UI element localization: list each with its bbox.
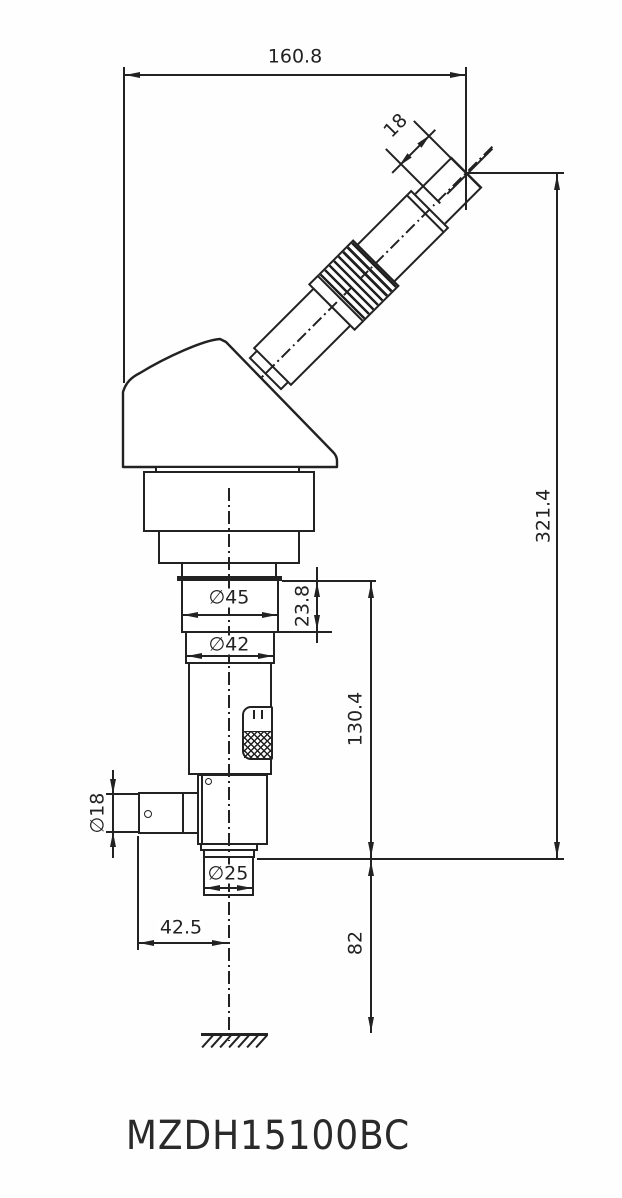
arrowhead <box>125 72 140 78</box>
dim-text-ring42-dia: ∅42 <box>207 636 252 655</box>
ext-line-mount-face <box>257 858 564 860</box>
arrowhead <box>368 861 374 876</box>
arrowhead <box>262 612 277 618</box>
dim-text-port-dia: ∅18 <box>89 791 108 836</box>
main-centerline <box>228 488 230 1041</box>
arrowhead <box>258 653 273 659</box>
arrowhead <box>554 842 560 857</box>
arrowhead <box>187 653 202 659</box>
knob-tick <box>261 710 263 719</box>
ext-line-tip-level <box>467 172 564 174</box>
arrowhead <box>139 940 154 946</box>
lower-block-screw <box>205 778 212 785</box>
dim-line-body-and-base <box>370 581 372 1033</box>
ext-line-port-end <box>137 836 139 950</box>
dim-line-ring-height <box>316 567 318 643</box>
technical-drawing-canvas: 160.8 18 321.4 23.8 ∅45 ∅42 130.4 ∅18 ∅2… <box>0 0 622 1198</box>
dim-line-overall-height <box>556 174 558 859</box>
knob-tick <box>253 710 255 719</box>
dim-text-overall-height: 321.4 <box>535 487 554 545</box>
side-port-screw <box>144 810 152 818</box>
arrowhead <box>554 175 560 190</box>
arrowhead <box>314 582 320 597</box>
dim-text-base-height: 82 <box>347 929 366 957</box>
zoom-knob <box>242 706 273 760</box>
arrowhead <box>368 1017 374 1032</box>
arrowhead <box>237 885 252 891</box>
ext-line-flange-top <box>282 580 376 582</box>
arrowhead <box>183 612 198 618</box>
model-title: MZDH15100BC <box>126 1113 410 1159</box>
ext-line-left <box>123 67 125 383</box>
ext-line-right <box>465 67 467 210</box>
arrowhead <box>417 132 432 147</box>
arrowhead <box>368 842 374 857</box>
arrowhead <box>314 615 320 630</box>
dim-text-port-offset: 42.5 <box>158 919 204 938</box>
arrowhead <box>450 72 465 78</box>
dim-text-top-width: 160.8 <box>266 48 324 67</box>
dim-text-ring-height: 23.8 <box>294 583 313 629</box>
dim-text-eyepiece-tube: 18 <box>379 109 412 142</box>
dim-line-top-width <box>124 74 466 76</box>
lower-block-inner-line <box>201 776 203 843</box>
arrowhead <box>212 940 227 946</box>
ext-line-flange-bottom <box>277 631 332 633</box>
arrowhead <box>110 779 116 794</box>
dim-text-stub-dia: ∅25 <box>206 865 251 884</box>
knob-knurl-pattern <box>244 731 271 758</box>
arrowhead <box>205 885 220 891</box>
dim-text-body-height: 130.4 <box>347 690 366 748</box>
arrowhead <box>110 832 116 847</box>
microscope-head <box>118 336 342 472</box>
arrowhead <box>368 583 374 598</box>
dim-text-ring45-dia: ∅45 <box>207 589 252 608</box>
side-port-collar-line <box>182 794 184 832</box>
